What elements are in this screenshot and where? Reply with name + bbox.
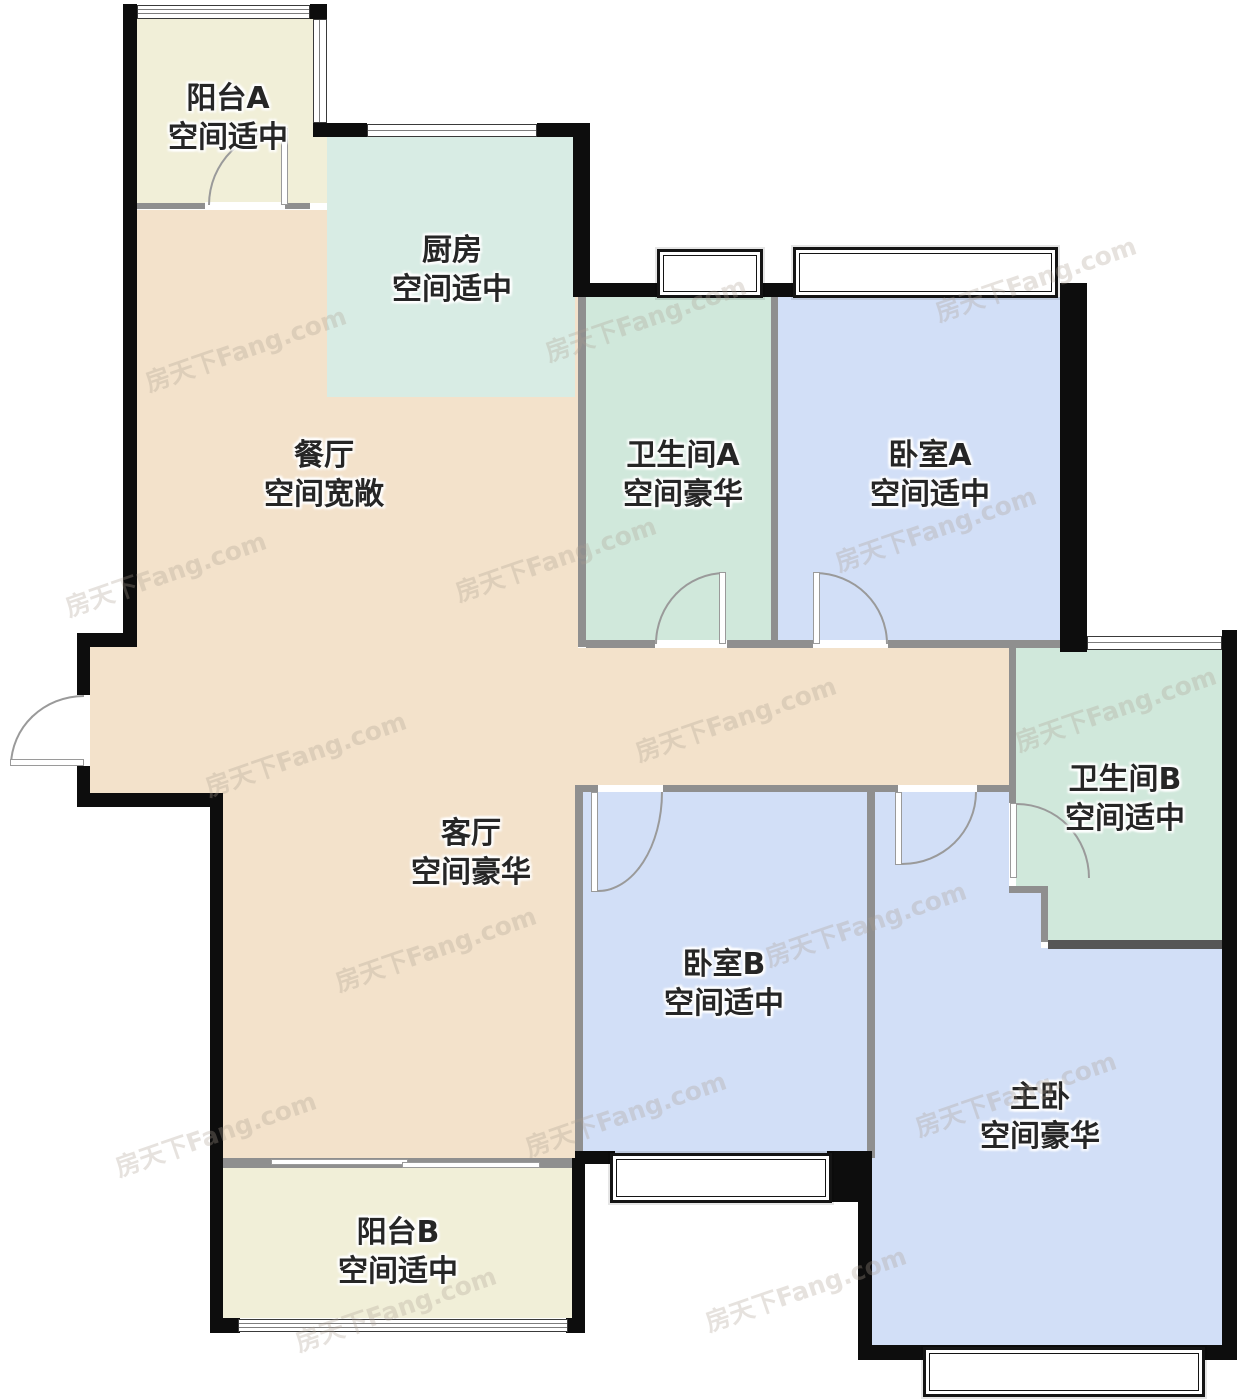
room-name: 客厅	[411, 814, 531, 853]
wall	[573, 283, 660, 297]
room-label-dining: 餐厅 空间宽敞	[264, 436, 384, 514]
room-name: 卫生间B	[1065, 760, 1185, 799]
room-name: 阳台A	[168, 79, 288, 118]
window	[1087, 636, 1222, 650]
room-size: 空间适中	[338, 1252, 458, 1291]
sliding-door	[271, 1159, 408, 1165]
wall	[77, 633, 90, 695]
room-label-bedroom-a: 卧室A 空间适中	[870, 436, 990, 514]
wall	[77, 793, 223, 807]
room-name: 餐厅	[264, 436, 384, 475]
wall	[310, 4, 327, 19]
floorplan: 阳台A 空间适中 厨房 空间适中 餐厅 空间宽敞 卫生间A 空间豪华 卧室A 空…	[0, 0, 1240, 1400]
room-label-bedroom-b: 卧室B 空间适中	[664, 945, 784, 1023]
room-size: 空间宽敞	[264, 475, 384, 514]
wall	[1222, 630, 1237, 1360]
door-leaf	[591, 792, 598, 892]
room-label-living: 客厅 空间豪华	[411, 814, 531, 892]
room-name: 卫生间A	[623, 436, 743, 475]
room-master-notch	[1009, 893, 1041, 948]
room-size: 空间豪华	[411, 853, 531, 892]
wall	[578, 297, 586, 647]
door-leaf	[719, 572, 726, 644]
room-master	[872, 792, 1009, 1345]
wall	[575, 785, 598, 792]
window	[137, 5, 310, 19]
room-dining-step	[90, 647, 137, 793]
room-size: 空间适中	[392, 270, 512, 309]
wall	[210, 807, 223, 1332]
room-bathroom-b-lower	[1048, 893, 1222, 940]
wall	[313, 123, 367, 137]
wall	[1048, 940, 1222, 949]
room-size: 空间适中	[168, 118, 288, 157]
bay-window	[657, 249, 763, 298]
wall	[123, 4, 137, 633]
room-size: 空间适中	[1065, 799, 1185, 838]
room-label-balcony-b: 阳台B 空间适中	[338, 1213, 458, 1291]
room-size: 空间豪华	[623, 475, 743, 514]
wall	[771, 297, 778, 640]
room-name: 卧室B	[664, 945, 784, 984]
door-leaf	[895, 792, 902, 865]
room-corridor	[578, 648, 1009, 785]
wall	[1009, 886, 1048, 893]
wall	[575, 1151, 615, 1164]
wall	[572, 1158, 585, 1333]
room-size: 空间适中	[664, 984, 784, 1023]
wall	[727, 640, 813, 648]
wall	[210, 1318, 240, 1333]
wall	[1060, 283, 1087, 652]
sliding-door	[402, 1162, 540, 1168]
window	[238, 1319, 568, 1332]
room-label-bathroom-b: 卫生间B 空间适中	[1065, 760, 1185, 838]
room-name: 厨房	[392, 231, 512, 270]
wall	[77, 766, 90, 793]
wall	[888, 640, 1077, 648]
room-label-balcony-a: 阳台A 空间适中	[168, 79, 288, 157]
bay-window	[610, 1153, 832, 1203]
wall	[1009, 648, 1016, 803]
wall	[867, 792, 875, 1158]
wall	[762, 283, 795, 297]
room-label-bathroom-a: 卫生间A 空间豪华	[623, 436, 743, 514]
door-leaf	[10, 759, 84, 766]
room-size: 空间适中	[870, 475, 990, 514]
wall	[1041, 893, 1048, 942]
wall	[832, 1155, 860, 1202]
door-leaf	[813, 572, 820, 644]
wall	[573, 123, 590, 297]
room-name: 主卧	[980, 1078, 1100, 1117]
room-name: 阳台B	[338, 1213, 458, 1252]
door-arc	[10, 695, 84, 766]
bay-window	[793, 247, 1058, 298]
wall	[575, 792, 583, 1158]
room-label-master: 主卧 空间豪华	[980, 1078, 1100, 1156]
wall	[977, 785, 1009, 792]
door-leaf	[1010, 803, 1017, 878]
wall	[663, 785, 898, 792]
window	[367, 124, 537, 137]
room-name: 卧室A	[870, 436, 990, 475]
room-label-kitchen: 厨房 空间适中	[392, 231, 512, 309]
wall	[858, 1158, 872, 1360]
bay-window	[923, 1347, 1205, 1397]
wall	[586, 640, 655, 648]
room-size: 空间豪华	[980, 1117, 1100, 1156]
window	[313, 19, 327, 123]
